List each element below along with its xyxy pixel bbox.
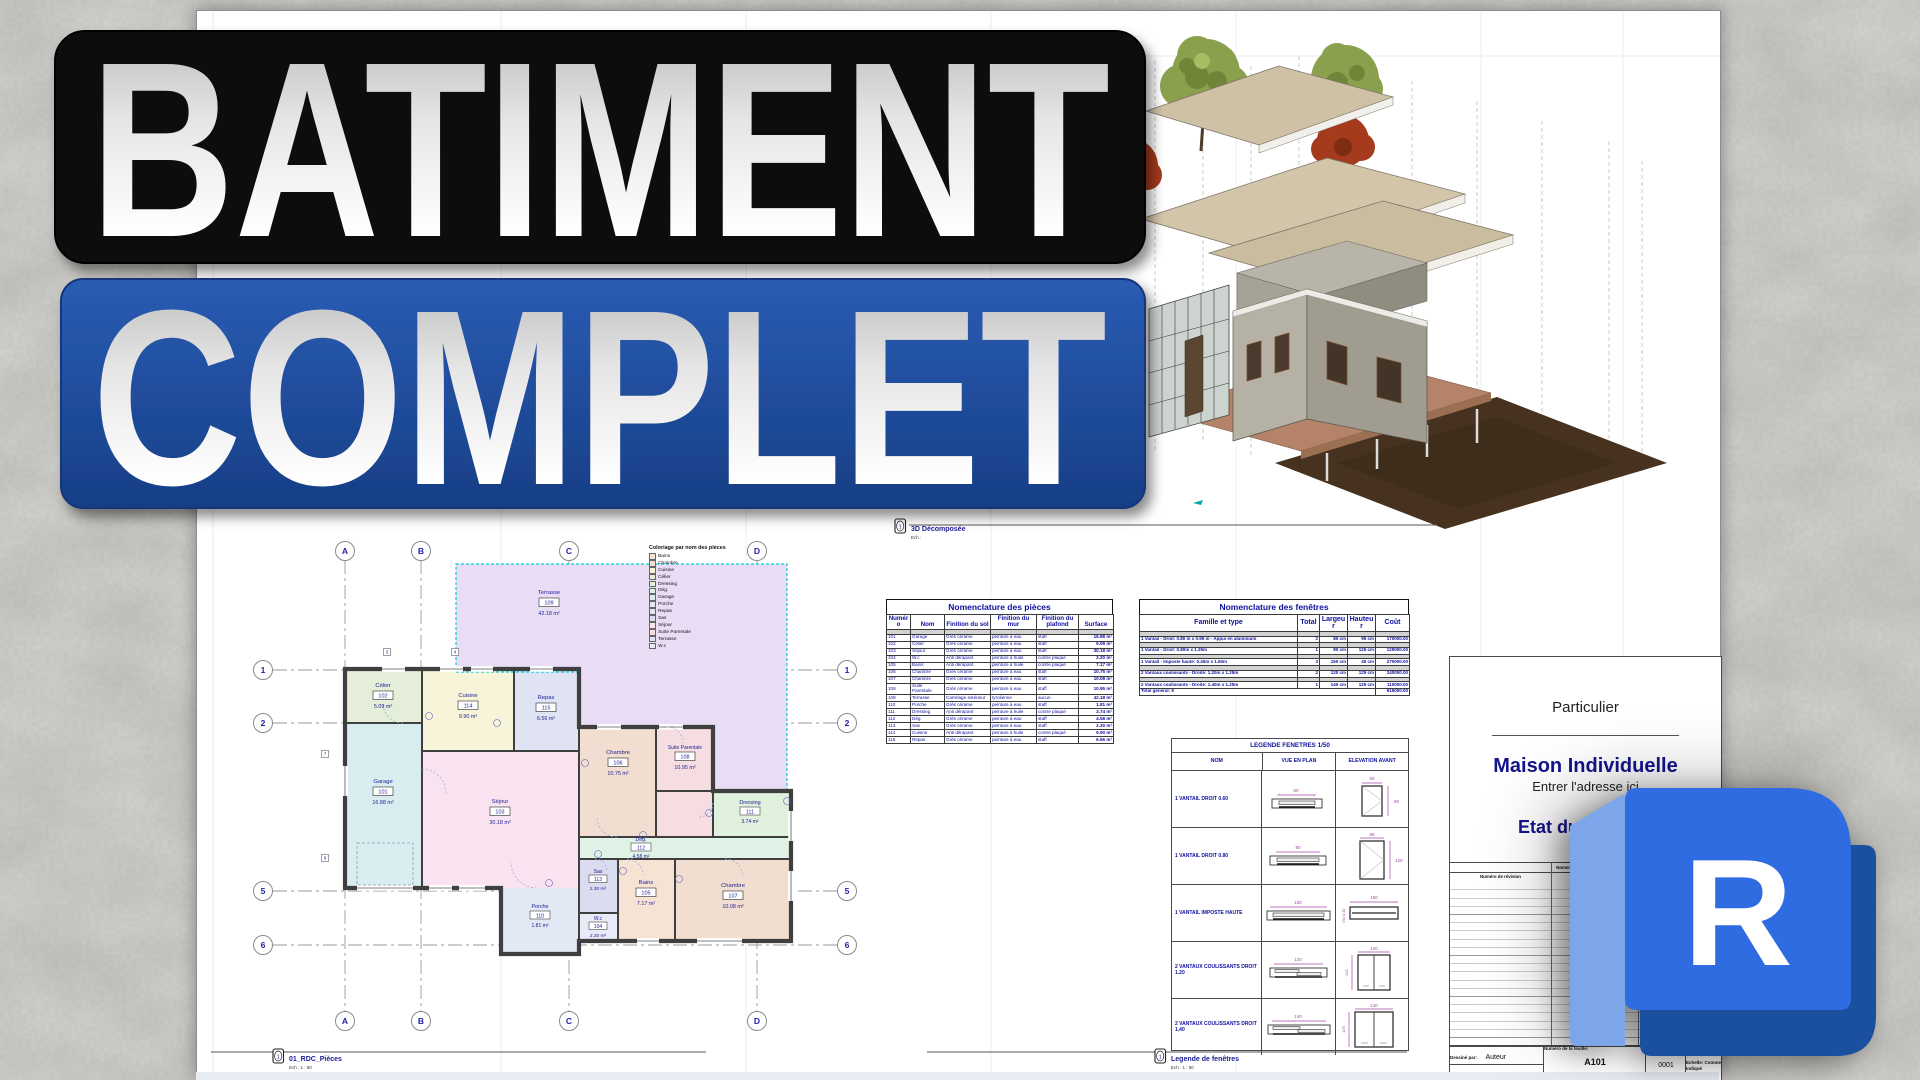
svg-text:42.18 m²: 42.18 m² xyxy=(538,611,559,617)
svg-text:Chambre: Chambre xyxy=(721,883,745,889)
label-porche: Porche 110 1.81 m² xyxy=(530,904,550,929)
drawn-by-label: Dessiné par: xyxy=(1450,1055,1477,1060)
svg-text:Ech : 1 : 50: Ech : 1 : 50 xyxy=(1171,1065,1194,1070)
revit-logo-letter: R xyxy=(1683,828,1793,998)
svg-text:30.18 m²: 30.18 m² xyxy=(489,820,510,826)
svg-text:3.74 m²: 3.74 m² xyxy=(742,819,759,825)
legend-row-1: 1 VANTAIL DROIT 0.60 60 60 90 xyxy=(1172,771,1408,828)
svg-text:2.20 m²: 2.20 m² xyxy=(590,933,607,939)
svg-text:111: 111 xyxy=(746,810,754,816)
svg-text:Terrasse: Terrasse xyxy=(538,590,560,596)
svg-text:10.95 m²: 10.95 m² xyxy=(674,765,695,771)
svg-text:5: 5 xyxy=(261,886,266,896)
window-legend-title: LEGENDE FENETRES 1/50 xyxy=(1172,739,1408,753)
3d-exploded-view xyxy=(1096,36,1667,529)
svg-text:Chambre: Chambre xyxy=(606,750,630,756)
coloriage-item-label: Dressing xyxy=(658,582,677,587)
svg-text:1: 1 xyxy=(845,665,850,675)
label-cuisine: Cuisine 114 9.90 m² xyxy=(458,693,478,720)
tree-red-left xyxy=(1096,135,1162,223)
coloriage-item: Repas xyxy=(649,608,769,615)
svg-text:A: A xyxy=(342,546,348,556)
caption-3d: 1 3D Décomposée Ech : xyxy=(895,519,1437,540)
room-chambre-107 xyxy=(675,859,791,941)
svg-text:2: 2 xyxy=(261,718,266,728)
coloriage-item-label: Repas xyxy=(658,609,672,614)
label-chambre-106: Chambre 106 10.75 m² xyxy=(606,750,630,777)
svg-text:D: D xyxy=(754,1016,760,1026)
thumbnail-stage: Garage 101 16.88 m² Célier 102 5.09 m² S… xyxy=(0,0,1920,1080)
svg-text:140: 140 xyxy=(1294,1014,1302,1019)
window-legend-panel: LEGENDE FENETRES 1/50 NOM VUE EN PLAN EL… xyxy=(1171,738,1409,1051)
house-glazed-facade xyxy=(1149,285,1229,437)
svg-text:115: 115 xyxy=(542,706,551,712)
svg-text:B: B xyxy=(418,1016,424,1026)
color-swatch xyxy=(649,643,656,650)
coloriage-item-label: Célier xyxy=(658,575,671,580)
svg-text:Repas: Repas xyxy=(538,695,555,701)
svg-text:1: 1 xyxy=(277,1054,280,1060)
svg-text:6: 6 xyxy=(845,940,850,950)
legend-row-5: 2 VANTAUX COULISSANTS DROIT 1.40 140 140 xyxy=(1172,999,1408,1055)
svg-text:Porche: Porche xyxy=(531,904,548,910)
legend-col-plan: VUE EN PLAN xyxy=(1263,753,1337,770)
schedule-pieces-table: NuméroNomFinition du solFinition du murF… xyxy=(886,614,1113,744)
svg-text:1.81 m²: 1.81 m² xyxy=(532,923,549,929)
svg-text:1: 1 xyxy=(899,524,902,530)
svg-text:109: 109 xyxy=(544,601,553,607)
sheet-edge xyxy=(196,1072,1719,1080)
svg-text:120: 120 xyxy=(1294,957,1302,962)
svg-text:Legende de fenêtres: Legende de fenêtres xyxy=(1171,1056,1239,1063)
svg-text:16.88 m²: 16.88 m² xyxy=(372,800,393,806)
legend-row-4: 2 VANTAUX COULISSANTS DROIT 1.20 120 120 xyxy=(1172,942,1408,999)
svg-text:Sas: Sas xyxy=(594,869,603,875)
svg-text:Ech : 1 : 50: Ech : 1 : 50 xyxy=(289,1065,312,1070)
room-porche xyxy=(501,888,579,954)
svg-text:A: A xyxy=(342,1016,348,1026)
svg-text:C: C xyxy=(566,1016,572,1026)
svg-text:105: 105 xyxy=(641,891,650,897)
svg-text:Bains: Bains xyxy=(639,880,654,886)
svg-text:Suite Parentale: Suite Parentale xyxy=(668,745,702,751)
color-swatch xyxy=(649,601,656,608)
room-degagement xyxy=(579,837,791,859)
svg-text:60: 60 xyxy=(1369,776,1375,781)
coloriage-item: Dég. xyxy=(649,587,769,594)
coloriage-item: Cuisine xyxy=(649,567,769,574)
svg-text:103: 103 xyxy=(495,810,504,816)
color-swatch xyxy=(649,567,656,574)
coloriage-item-label: Sas xyxy=(658,616,666,621)
svg-text:Ech :: Ech : xyxy=(911,535,921,540)
coloriage-item: Séjour xyxy=(649,622,769,629)
coloriage-item: W.c xyxy=(649,643,769,650)
svg-text:1: 1 xyxy=(261,665,266,675)
room-suite-ext xyxy=(656,791,713,837)
coloriage-item-label: Bains xyxy=(658,554,670,559)
color-swatch xyxy=(649,622,656,629)
revit-sheet: Garage 101 16.88 m² Célier 102 5.09 m² S… xyxy=(196,10,1721,1074)
svg-text:6: 6 xyxy=(261,940,266,950)
svg-text:108: 108 xyxy=(680,755,689,761)
svg-text:Garage: Garage xyxy=(373,779,392,785)
coloriage-item-label: W.c xyxy=(658,644,666,649)
site-marker xyxy=(1193,500,1203,505)
svg-text:150: 150 xyxy=(1370,895,1378,900)
svg-text:5.09 m²: 5.09 m² xyxy=(374,704,392,710)
schedule-pieces: Nomenclature des pièces NuméroNomFinitio… xyxy=(886,599,1113,744)
svg-text:Dressing: Dressing xyxy=(739,800,760,806)
color-swatch xyxy=(649,608,656,615)
coloriage-item-label: Porche xyxy=(658,602,673,607)
label-dressing: Dressing 111 3.74 m² xyxy=(739,800,760,825)
svg-text:5: 5 xyxy=(845,886,850,896)
color-swatch xyxy=(649,588,656,595)
svg-text:3D Décomposée: 3D Décomposée xyxy=(911,526,966,533)
legend-col-elevation: ELEVATION AVANT xyxy=(1336,753,1408,770)
svg-text:104: 104 xyxy=(594,924,603,930)
revit-logo-side-face xyxy=(1570,795,1625,1046)
svg-text:C: C xyxy=(566,546,572,556)
coloriage-legend: Coloriage par nom des pièces BainsChambr… xyxy=(649,545,769,649)
color-swatch xyxy=(649,553,656,560)
revit-logo: R xyxy=(1520,760,1900,1080)
schedule-fenetres-title: Nomenclature des fenêtres xyxy=(1139,599,1409,614)
svg-text:6.56 m²: 6.56 m² xyxy=(537,716,555,722)
legend-col-nom: NOM xyxy=(1172,753,1263,770)
svg-text:1: 1 xyxy=(1159,1054,1162,1060)
label-bains: Bains 105 7.17 m² xyxy=(636,880,656,907)
svg-text:01_RDC_Pièces: 01_RDC_Pièces xyxy=(289,1056,342,1063)
coloriage-item-label: Chambre xyxy=(658,561,678,566)
label-chambre-107: Chambre 107 10.08 m² xyxy=(721,883,745,910)
coloriage-item: Bains xyxy=(649,553,769,560)
svg-text:112: 112 xyxy=(637,846,645,852)
svg-text:10.75 m²: 10.75 m² xyxy=(607,771,628,777)
divider xyxy=(1492,735,1679,736)
coloriage-item: Porche xyxy=(649,601,769,608)
coloriage-item: Célier xyxy=(649,574,769,581)
room-sas xyxy=(579,859,618,913)
label-repas: Repas 115 6.56 m² xyxy=(536,695,556,722)
svg-text:Célier: Célier xyxy=(375,683,390,689)
svg-text:101: 101 xyxy=(378,790,387,796)
color-swatch xyxy=(649,629,656,636)
client-name: Particulier xyxy=(1450,699,1721,716)
svg-text:125: 125 xyxy=(1341,1026,1346,1033)
coloriage-item-label: Séjour xyxy=(658,623,672,628)
coloriage-item-label: Suite Parentale xyxy=(658,630,691,635)
coloriage-item: Dressing xyxy=(649,581,769,588)
svg-text:10.08 m²: 10.08 m² xyxy=(722,904,743,910)
svg-text:120: 120 xyxy=(1395,858,1403,863)
room-chambre-106 xyxy=(579,727,656,837)
color-swatch xyxy=(649,636,656,643)
coloriage-title: Coloriage par nom des pièces xyxy=(649,545,769,551)
svg-text:B: B xyxy=(418,546,424,556)
svg-text:114: 114 xyxy=(464,704,473,710)
svg-text:Séjour: Séjour xyxy=(492,799,509,805)
schedule-fenetres-table: Famille et typeTotalLargeurHauteurCoût1 … xyxy=(1139,614,1409,696)
svg-text:60: 60 xyxy=(1293,788,1299,793)
svg-text:2: 2 xyxy=(845,718,850,728)
color-swatch xyxy=(649,574,656,581)
label-terrasse: Terrasse 109 42.18 m² xyxy=(538,590,560,617)
svg-text:7.17 m²: 7.17 m² xyxy=(637,901,655,907)
svg-text:107: 107 xyxy=(728,894,737,900)
coloriage-item-label: Cuisine xyxy=(658,568,674,573)
schedule-pieces-title: Nomenclature des pièces xyxy=(886,599,1113,614)
coloriage-item: Suite Parentale xyxy=(649,629,769,636)
svg-text:4.58 m²: 4.58 m² xyxy=(633,854,650,860)
label-sejour: Séjour 103 30.18 m² xyxy=(489,799,510,826)
svg-text:120: 120 xyxy=(1370,946,1378,951)
coloriage-item: Terrasse xyxy=(649,636,769,643)
label-garage: Garage 101 16.88 m² xyxy=(372,779,393,806)
svg-text:102: 102 xyxy=(378,694,387,700)
legend-row-3: 1 VANTAIL IMPOSTE HAUTE 150 150 Vsl 0.40 xyxy=(1172,885,1408,942)
svg-text:W.c: W.c xyxy=(594,916,603,922)
svg-text:Cuisine: Cuisine xyxy=(458,693,477,699)
coloriage-item: Chambre xyxy=(649,560,769,567)
window-legend-headers: NOM VUE EN PLAN ELEVATION AVANT xyxy=(1172,753,1408,771)
svg-text:Vsl 0.40: Vsl 0.40 xyxy=(1341,908,1346,923)
svg-text:106: 106 xyxy=(613,761,622,767)
legend-row-2: 1 VANTAIL DROIT 0.80 80 80 120 xyxy=(1172,828,1408,885)
color-swatch xyxy=(649,560,656,567)
caption-plan: 1 01_RDC_Pièces Ech : 1 : 50 xyxy=(211,1049,706,1070)
color-swatch xyxy=(649,615,656,622)
svg-text:140: 140 xyxy=(1370,1003,1378,1008)
svg-text:125: 125 xyxy=(1344,969,1349,976)
svg-text:113: 113 xyxy=(594,877,602,883)
room-cuisine xyxy=(422,669,514,751)
svg-text:90: 90 xyxy=(1394,799,1400,804)
schedule-fenetres: Nomenclature des fenêtres Famille et typ… xyxy=(1139,599,1409,696)
svg-text:2.30 m²: 2.30 m² xyxy=(590,886,607,892)
house-concrete-volumes xyxy=(1233,289,1427,443)
coloriage-item: Sas xyxy=(649,615,769,622)
color-swatch xyxy=(649,594,656,601)
svg-text:9.90 m²: 9.90 m² xyxy=(459,714,477,720)
svg-text:80: 80 xyxy=(1369,832,1375,837)
coloriage-item-label: Dég. xyxy=(658,588,668,593)
drawn-by-value: Auteur xyxy=(1485,1054,1506,1061)
svg-text:150: 150 xyxy=(1294,900,1302,905)
coloriage-item-label: Garage xyxy=(658,595,674,600)
coloriage-item: Garage xyxy=(649,594,769,601)
label-celier: Célier 102 5.09 m² xyxy=(373,683,393,710)
coloriage-item-label: Terrasse xyxy=(658,637,676,642)
svg-text:110: 110 xyxy=(536,914,544,920)
color-swatch xyxy=(649,581,656,588)
svg-text:80: 80 xyxy=(1295,845,1301,850)
